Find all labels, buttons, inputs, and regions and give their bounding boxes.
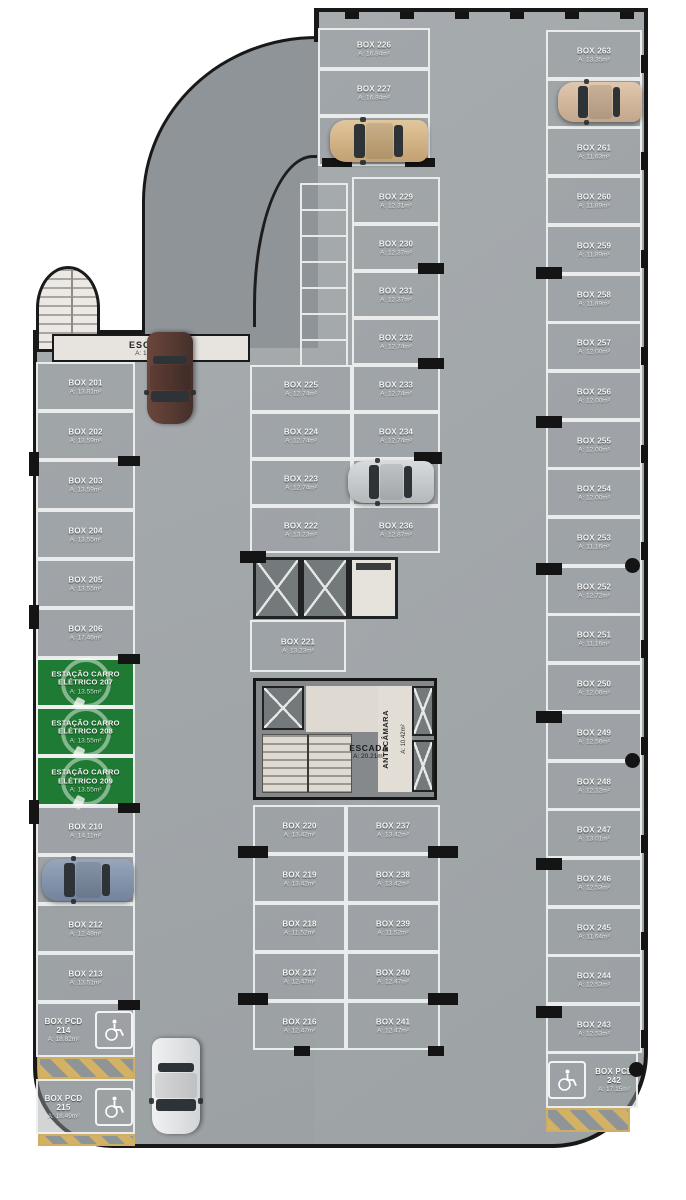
parking-stall: BOX 250A: 12.06m²	[546, 663, 642, 712]
parking-stall: BOX 202A: 13.59m²	[36, 411, 135, 460]
stall-label: BOX 227	[320, 84, 428, 93]
parking-stall: BOX 229A: 12.31m²	[352, 177, 440, 224]
parking-stall: BOX 219A: 13.42m²	[253, 854, 346, 903]
stall-label: BOX 260	[548, 192, 640, 201]
stall-area: A: 13.42m²	[255, 880, 344, 887]
stall-area: A: 11.89m²	[548, 300, 640, 307]
parking-stall: BOX 247A: 13.01m²	[546, 809, 642, 858]
ev-charger-icon	[61, 707, 111, 757]
stall-area: A: 18.82m²	[38, 1036, 89, 1043]
parking-stall: BOX 258A: 11.89m²	[546, 274, 642, 323]
stall-area: A: 13.01m²	[548, 835, 640, 842]
stall-label: BOX 210	[38, 822, 133, 831]
stall-area: A: 13.35m²	[548, 56, 640, 63]
structural-column	[565, 12, 579, 19]
stall-label: BOX 212	[38, 920, 133, 929]
stall-area: A: 12.31m²	[354, 202, 438, 209]
wheelchair-icon	[102, 1018, 126, 1042]
structural-column	[641, 1030, 648, 1048]
parking-stall: BOX 254A: 12.00m²	[546, 468, 642, 517]
stall-area: A: 18.49m²	[38, 1113, 89, 1120]
structural-column	[238, 993, 268, 1005]
structural-column	[536, 858, 562, 870]
parking-stall: BOX 244A: 12.53m²	[546, 955, 642, 1004]
stall-label: BOX 206	[38, 625, 133, 634]
elevator-shaft-icon	[253, 557, 301, 619]
structural-column	[294, 1046, 310, 1056]
stall-area: A: 13.42m²	[255, 831, 344, 838]
parking-stall: BOX 263A: 13.35m²	[546, 30, 642, 79]
structural-column	[400, 12, 414, 19]
parking-stall: BOX 238A: 13.42m²	[346, 854, 440, 903]
structural-column	[641, 445, 648, 463]
elevator-lobby	[349, 557, 398, 619]
parking-stall: BOX 203A: 13.59m²	[36, 460, 135, 510]
stall-area: A: 12.47m²	[255, 1027, 344, 1034]
hatched-walkway	[300, 183, 348, 365]
round-column	[625, 753, 640, 768]
parking-stall: BOX 224A: 12.74m²	[250, 412, 352, 459]
core-landing	[306, 686, 380, 732]
parking-floor-plan: ESCADA A: 12.71m² ANTECÂMARA A: 10.42m² …	[0, 0, 686, 1200]
structural-column	[428, 1046, 444, 1056]
stall-label: BOX 229	[354, 192, 438, 201]
stall-label: BOX 225	[252, 380, 350, 389]
stall-label: BOX PCD 214	[38, 1017, 89, 1035]
stall-area: A: 13.55m²	[38, 536, 133, 543]
parking-stall: BOX 251A: 11.16m²	[546, 614, 642, 663]
ev-charging-stall: ESTAÇÃO CARRO ELÉTRICO 209A: 13.55m²	[36, 756, 135, 806]
stall-area: A: 16.84m²	[320, 50, 428, 57]
stall-label: BOX 216	[255, 1017, 344, 1026]
structural-column	[418, 263, 444, 274]
structural-column	[536, 1006, 562, 1018]
accessible-parking-stall: BOX PCD 214A: 18.82m²	[36, 1002, 135, 1057]
stall-area: A: 13.42m²	[348, 831, 438, 838]
parking-stall: BOX 248A: 12.12m²	[546, 761, 642, 810]
stall-area: A: 12.47m²	[348, 978, 438, 985]
parking-stall: BOX 213A: 13.51m²	[36, 953, 135, 1002]
stall-area: A: 11.89m²	[548, 251, 640, 258]
stall-label: BOX 257	[548, 338, 640, 347]
round-column	[629, 1062, 644, 1077]
structural-column	[29, 800, 39, 824]
structural-column	[536, 267, 562, 279]
stall-area: A: 12.53m²	[548, 1030, 640, 1037]
stall-label: BOX 232	[354, 333, 438, 342]
parking-stall: BOX 261A: 11.63m²	[546, 127, 642, 176]
stall-label: BOX 250	[548, 679, 640, 688]
parking-stall: BOX 205A: 13.55m²	[36, 559, 135, 608]
structural-column	[510, 12, 524, 19]
parking-stall: BOX 218A: 11.52m²	[253, 903, 346, 952]
stall-area: A: 12.47m²	[255, 978, 344, 985]
parking-stall: BOX 226A: 16.84m²	[318, 28, 430, 69]
ev-charger-icon	[61, 658, 111, 708]
stall-label: BOX 245	[548, 923, 640, 932]
stall-area: A: 11.16m²	[548, 543, 640, 550]
structural-column	[641, 152, 648, 170]
stall-label: BOX 201	[38, 378, 133, 387]
elevator-shaft-icon	[301, 557, 349, 619]
stall-label: BOX 223	[252, 474, 350, 483]
stall-label: BOX 261	[548, 143, 640, 152]
structural-column	[536, 416, 562, 428]
stall-label: BOX 237	[348, 821, 438, 830]
stall-area: A: 11.64m²	[548, 933, 640, 940]
structural-column	[118, 654, 140, 664]
stall-label: BOX 243	[548, 1020, 640, 1029]
stall-label: BOX 240	[348, 968, 438, 977]
core-escada-area: A: 20.21m²	[334, 753, 404, 760]
stall-label: BOX 256	[548, 387, 640, 396]
stall-area: A: 12.87m²	[354, 531, 438, 538]
structural-column	[29, 452, 39, 476]
stall-label: BOX 239	[348, 919, 438, 928]
stall-label: BOX 217	[255, 968, 344, 977]
stall-area: A: 12.00m²	[548, 494, 640, 501]
stall-label: BOX 255	[548, 436, 640, 445]
stall-label: BOX 233	[354, 380, 438, 389]
parking-stall: BOX 223A: 12.74m²	[250, 459, 352, 506]
stall-label: BOX 244	[548, 971, 640, 980]
stall-area: A: 11.89m²	[548, 202, 640, 209]
parking-stall: BOX 201A: 13.81m²	[36, 362, 135, 411]
stall-area: A: 12.53m²	[548, 981, 640, 988]
parking-stall: BOX 257A: 12.00m²	[546, 322, 642, 371]
stall-label: BOX 258	[548, 290, 640, 299]
stall-area: A: 12.74m²	[252, 484, 350, 491]
parking-stall: BOX 240A: 12.47m²	[346, 952, 440, 1001]
stall-area: A: 13.81m²	[38, 388, 133, 395]
stall-area: A: 12.06m²	[548, 689, 640, 696]
stall-area: A: 11.63m²	[548, 153, 640, 160]
structural-column	[238, 846, 268, 858]
structural-column	[641, 932, 648, 950]
stall-label: BOX 236	[354, 521, 438, 530]
stall-area: A: 12.12m²	[548, 787, 640, 794]
structural-column	[641, 640, 648, 658]
stall-label: BOX 213	[38, 969, 133, 978]
stall-area: A: 12.37m²	[354, 249, 438, 256]
stall-area: A: 12.74m²	[252, 437, 350, 444]
stall-label: BOX 222	[252, 521, 350, 530]
stall-label: BOX 253	[548, 533, 640, 542]
stall-area: A: 13.55m²	[38, 585, 133, 592]
stall-label: BOX 246	[548, 874, 640, 883]
stall-area: A: 12.74m²	[354, 437, 438, 444]
structural-column	[620, 12, 634, 19]
stall-label: BOX PCD 215	[38, 1094, 89, 1112]
stall-area: A: 11.52m²	[348, 929, 438, 936]
parking-stall: BOX 212A: 12.48m²	[36, 904, 135, 953]
stall-area: A: 12.00m²	[548, 348, 640, 355]
stall-area: A: 12.00m²	[548, 397, 640, 404]
elevator-shaft-icon	[412, 686, 434, 736]
car-aisle-lower	[152, 1038, 200, 1134]
stall-area: A: 12.72m²	[548, 592, 640, 599]
stall-area: A: 16.84m²	[320, 94, 428, 101]
stall-label: BOX 247	[548, 825, 640, 834]
stall-label: BOX 254	[548, 484, 640, 493]
stall-label: BOX 238	[348, 870, 438, 879]
stall-label: BOX 221	[252, 638, 344, 647]
stall-area: A: 12.74m²	[252, 390, 350, 397]
parking-stall: BOX 231A: 12.37m²	[352, 271, 440, 318]
yellow-hatch-zone	[546, 1108, 630, 1132]
structural-column	[455, 12, 469, 19]
parking-stall: BOX 225A: 12.74m²	[250, 365, 352, 412]
stall-area: A: 11.52m²	[255, 929, 344, 936]
accessible-parking-stall: BOX PCD 215A: 18.49m²	[36, 1079, 135, 1134]
stall-area: A: 12.74m²	[354, 390, 438, 397]
car-aisle-upper	[147, 332, 193, 424]
structural-column	[29, 605, 39, 629]
accessible-parking-stall: BOX PCD 242A: 17.15m²	[546, 1052, 638, 1108]
stall-label: BOX 252	[548, 582, 640, 591]
elevator-shaft-icon	[412, 740, 434, 792]
stall-label: BOX 219	[255, 870, 344, 879]
stall-label: BOX 230	[354, 239, 438, 248]
stall-area: A: 13.59m²	[38, 437, 133, 444]
structural-column	[641, 542, 648, 560]
stall-area: A: 14.11m²	[38, 832, 133, 839]
stair-core: ANTECÂMARA A: 10.42m² ESCADA A: 20.21m²	[253, 678, 437, 800]
stall-area: A: 12.74m²	[354, 343, 438, 350]
stall-area: A: 12.53m²	[548, 884, 640, 891]
parking-stall: BOX 260A: 11.89m²	[546, 176, 642, 225]
car-box-228	[330, 120, 428, 162]
stall-area: A: 17.15m²	[592, 1086, 636, 1093]
structural-column	[641, 835, 648, 853]
stall-label: BOX 259	[548, 241, 640, 250]
parking-stall: BOX 206A: 17.46m²	[36, 608, 135, 658]
stall-label: BOX 220	[255, 821, 344, 830]
structural-column	[536, 563, 562, 575]
stall-area: A: 17.46m²	[38, 635, 133, 642]
stall-area: A: 12.48m²	[38, 930, 133, 937]
stall-label: BOX 204	[38, 526, 133, 535]
structural-column	[240, 551, 266, 563]
ev-charging-stall: ESTAÇÃO CARRO ELÉTRICO 207A: 13.55m²	[36, 658, 135, 707]
structural-column	[418, 358, 444, 369]
stall-label: BOX 226	[320, 40, 428, 49]
car-box-235	[348, 461, 434, 503]
stall-label: BOX 218	[255, 919, 344, 928]
round-column	[625, 558, 640, 573]
wheelchair-icon	[555, 1068, 579, 1092]
parking-stall: BOX 210A: 14.11m²	[36, 806, 135, 855]
stall-label: BOX 263	[548, 46, 640, 55]
structural-column	[641, 250, 648, 268]
structural-column	[536, 711, 562, 723]
stall-area: A: 12.37m²	[354, 296, 438, 303]
parking-stall: BOX 233A: 12.74m²	[352, 365, 440, 412]
parking-stall: BOX 241A: 12.47m²	[346, 1001, 440, 1050]
parking-stall: BOX 204A: 13.55m²	[36, 510, 135, 559]
stall-label: BOX 231	[354, 286, 438, 295]
stall-label: BOX 203	[38, 477, 133, 486]
yellow-hatch-zone	[38, 1057, 135, 1079]
stall-label: BOX 241	[348, 1017, 438, 1026]
stall-area: A: 11.16m²	[548, 640, 640, 647]
car-box-262	[558, 82, 642, 122]
parking-stall: BOX 221A: 13.23m²	[250, 620, 346, 672]
structural-column	[345, 12, 359, 19]
stall-area: A: 13.59m²	[38, 487, 133, 494]
parking-stall: BOX 237A: 13.42m²	[346, 805, 440, 854]
structural-column	[641, 737, 648, 755]
stall-area: A: 13.23m²	[252, 531, 350, 538]
ev-charger-icon	[61, 756, 111, 806]
structural-column	[428, 993, 458, 1005]
stall-label: BOX 249	[548, 728, 640, 737]
elevator-shaft-icon	[262, 686, 304, 730]
antecamara: ANTECÂMARA A: 10.42m²	[378, 686, 412, 792]
stall-label: BOX 234	[354, 427, 438, 436]
stall-area: A: 12.00m²	[548, 446, 640, 453]
parking-stall: BOX 256A: 12.00m²	[546, 371, 642, 420]
structural-column	[118, 1000, 140, 1010]
parking-stall: BOX 245A: 11.64m²	[546, 907, 642, 956]
yellow-hatch-zone	[38, 1134, 135, 1146]
parking-stall: BOX 239A: 11.52m²	[346, 903, 440, 952]
parking-stall: BOX 216A: 12.47m²	[253, 1001, 346, 1050]
stall-label: BOX 248	[548, 777, 640, 786]
stall-label: BOX 224	[252, 427, 350, 436]
stall-area: A: 13.42m²	[348, 880, 438, 887]
parking-stall: BOX 236A: 12.87m²	[352, 506, 440, 553]
structural-column	[428, 846, 458, 858]
stall-area: A: 12.56m²	[548, 738, 640, 745]
car-box-211	[42, 859, 134, 901]
ev-charging-stall: ESTAÇÃO CARRO ELÉTRICO 208A: 13.55m²	[36, 707, 135, 756]
core-escada-label: ESCADA	[334, 743, 404, 753]
wheelchair-icon	[102, 1095, 126, 1119]
stall-area: A: 13.23m²	[252, 648, 344, 655]
parking-stall: BOX 222A: 13.23m²	[250, 506, 352, 553]
structural-column	[118, 456, 140, 466]
parking-stall: BOX 227A: 16.84m²	[318, 69, 430, 116]
stall-area: A: 13.51m²	[38, 979, 133, 986]
stall-area: A: 12.47m²	[348, 1027, 438, 1034]
stall-label: BOX 251	[548, 630, 640, 639]
structural-column	[641, 347, 648, 365]
structural-column	[118, 803, 140, 813]
stall-label: BOX 202	[38, 427, 133, 436]
structural-column	[641, 55, 648, 73]
stall-label: BOX 205	[38, 575, 133, 584]
